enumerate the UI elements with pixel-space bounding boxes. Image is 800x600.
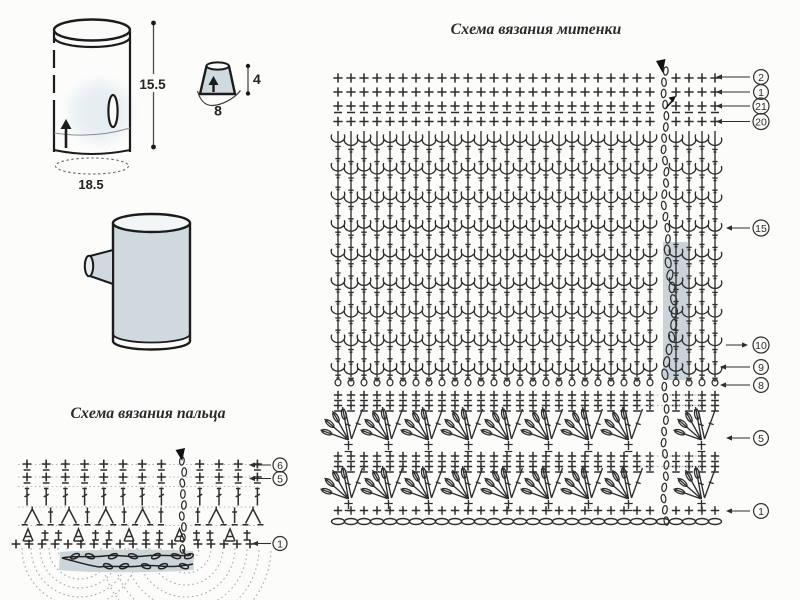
svg-text:15: 15 bbox=[755, 223, 767, 235]
svg-text:Схема вязания митенки: Схема вязания митенки bbox=[451, 21, 622, 38]
svg-text:5: 5 bbox=[758, 433, 764, 445]
svg-text:1: 1 bbox=[277, 538, 283, 550]
svg-text:8: 8 bbox=[758, 380, 764, 392]
svg-text:1: 1 bbox=[758, 506, 764, 518]
svg-text:18.5: 18.5 bbox=[78, 177, 103, 192]
svg-text:2: 2 bbox=[758, 72, 764, 84]
svg-text:Схема вязания пальца: Схема вязания пальца bbox=[70, 405, 225, 422]
svg-text:8: 8 bbox=[214, 103, 222, 119]
svg-text:10: 10 bbox=[755, 340, 767, 352]
svg-text:21: 21 bbox=[755, 101, 767, 113]
svg-text:1: 1 bbox=[758, 87, 764, 99]
svg-text:5: 5 bbox=[277, 473, 283, 485]
svg-text:9: 9 bbox=[758, 362, 764, 374]
svg-text:15.5: 15.5 bbox=[139, 77, 166, 92]
svg-text:20: 20 bbox=[755, 116, 767, 128]
svg-text:6: 6 bbox=[277, 460, 283, 472]
svg-text:4: 4 bbox=[253, 71, 261, 87]
